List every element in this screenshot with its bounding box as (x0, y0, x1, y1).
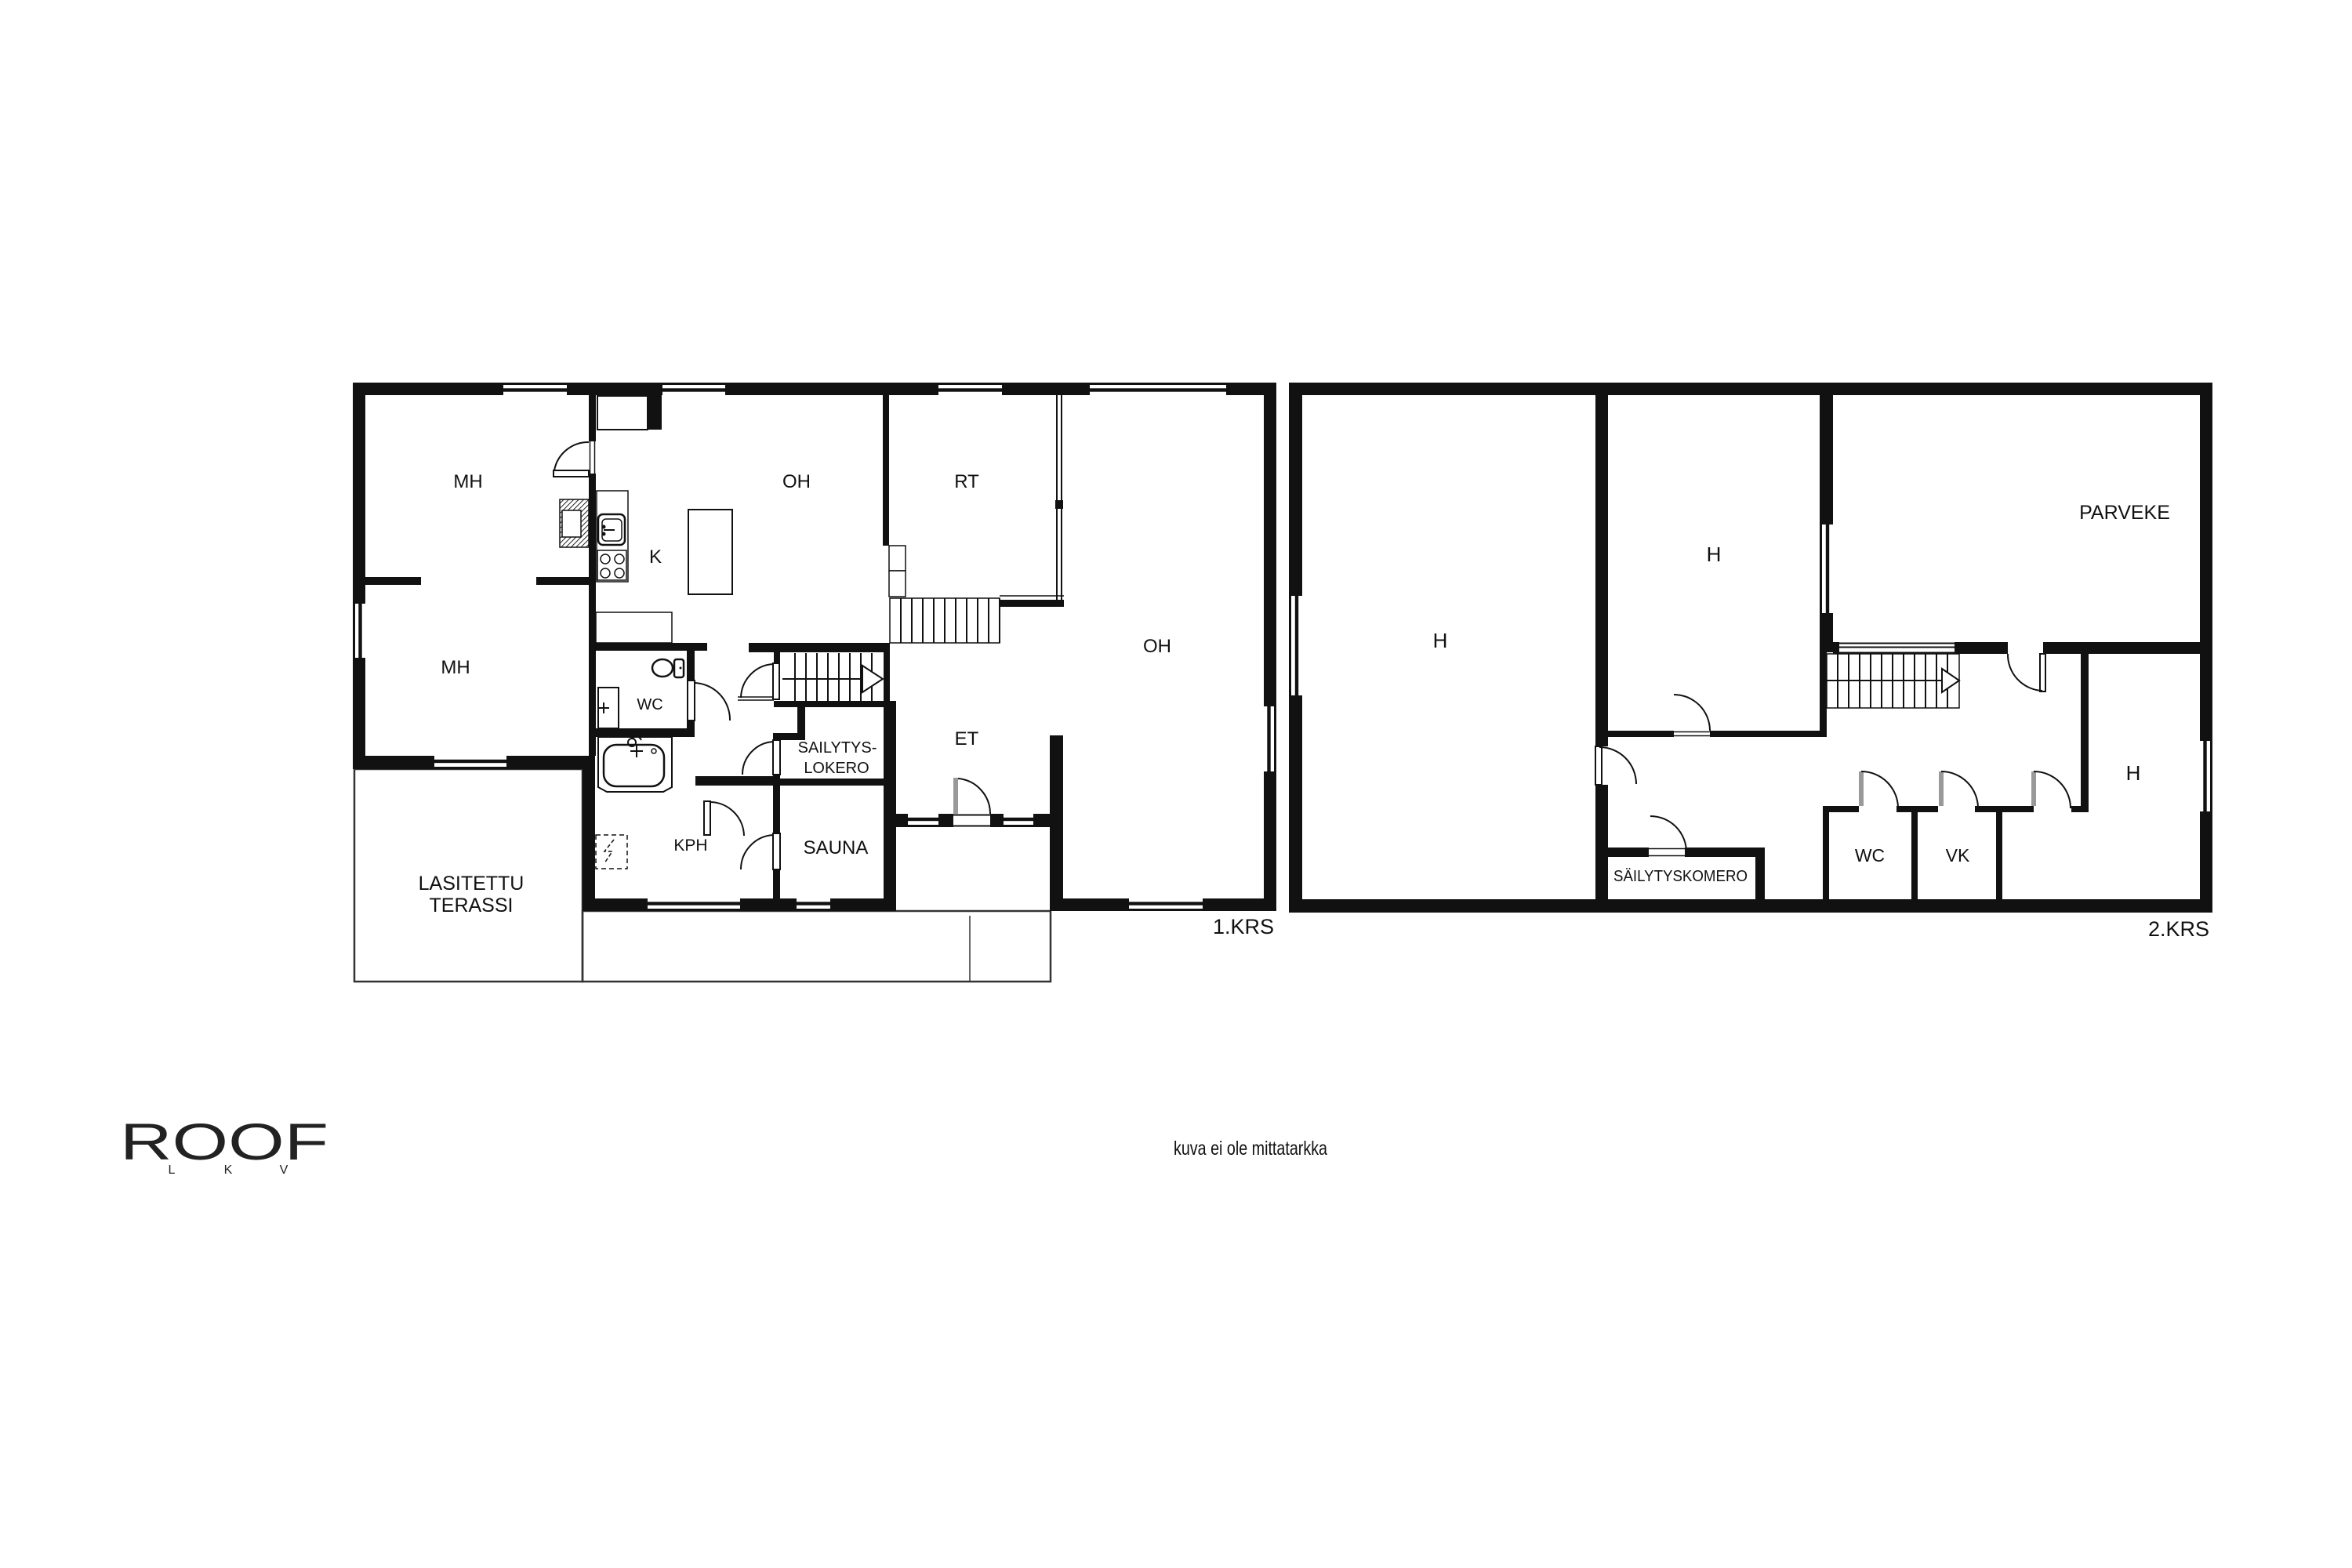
svg-text:PARVEKE: PARVEKE (2079, 502, 2170, 524)
svg-text:WC: WC (1855, 845, 1885, 866)
svg-text:SAUNA: SAUNA (804, 837, 869, 858)
svg-text:ROOF: ROOF (120, 1112, 328, 1171)
svg-text:OH: OH (1143, 636, 1171, 657)
svg-text:SAILYTYS-: SAILYTYS- (798, 739, 877, 757)
svg-text:1.KRS: 1.KRS (1213, 915, 1274, 938)
svg-text:H: H (1707, 543, 1722, 566)
svg-text:MH: MH (453, 471, 482, 492)
svg-text:H: H (2126, 761, 2141, 785)
svg-text:KPH: KPH (673, 837, 707, 855)
svg-text:H: H (1433, 629, 1448, 652)
svg-text:VK: VK (1946, 845, 1970, 866)
svg-text:TERASSI: TERASSI (430, 895, 514, 916)
svg-text:ET: ET (955, 728, 979, 750)
svg-text:RT: RT (954, 471, 979, 492)
svg-text:L: L (169, 1163, 176, 1177)
svg-text:LOKERO: LOKERO (804, 760, 869, 777)
svg-text:V: V (280, 1163, 289, 1177)
svg-text:kuva ei ole mittatarkka: kuva ei ole mittatarkka (1174, 1138, 1327, 1160)
svg-text:SÄILYTYSKOMERO: SÄILYTYSKOMERO (1613, 868, 1748, 885)
svg-text:WC: WC (637, 696, 662, 713)
svg-text:OH: OH (782, 471, 811, 492)
svg-text:LASITETTU: LASITETTU (419, 873, 524, 895)
svg-text:2.KRS: 2.KRS (2148, 917, 2209, 941)
svg-text:MH: MH (441, 657, 470, 678)
svg-text:K: K (649, 546, 662, 568)
svg-text:K: K (224, 1163, 233, 1177)
